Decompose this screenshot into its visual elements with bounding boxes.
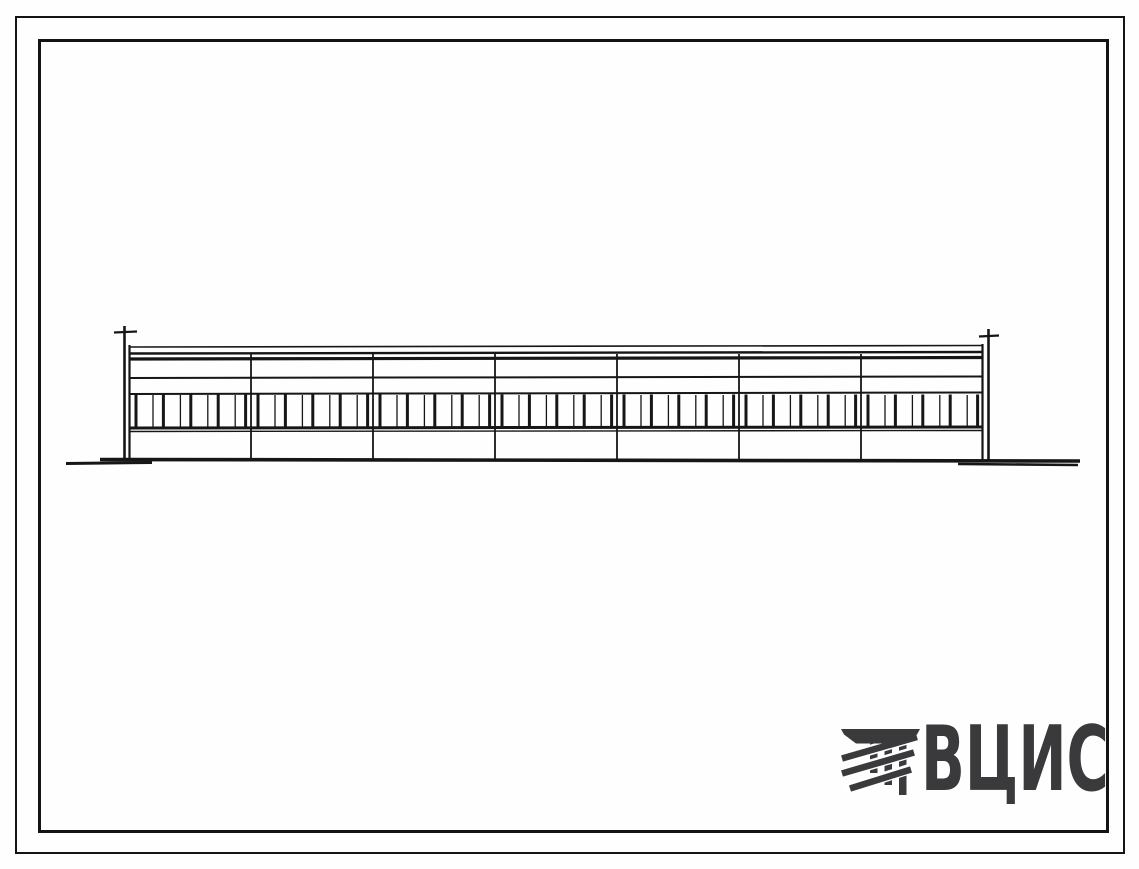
vcis-logo-icon	[838, 722, 923, 802]
drawing-sheet: ВЦИС	[0, 0, 1139, 869]
logo: ВЦИС	[838, 722, 1139, 806]
logo-text: ВЦИС	[921, 715, 1109, 805]
